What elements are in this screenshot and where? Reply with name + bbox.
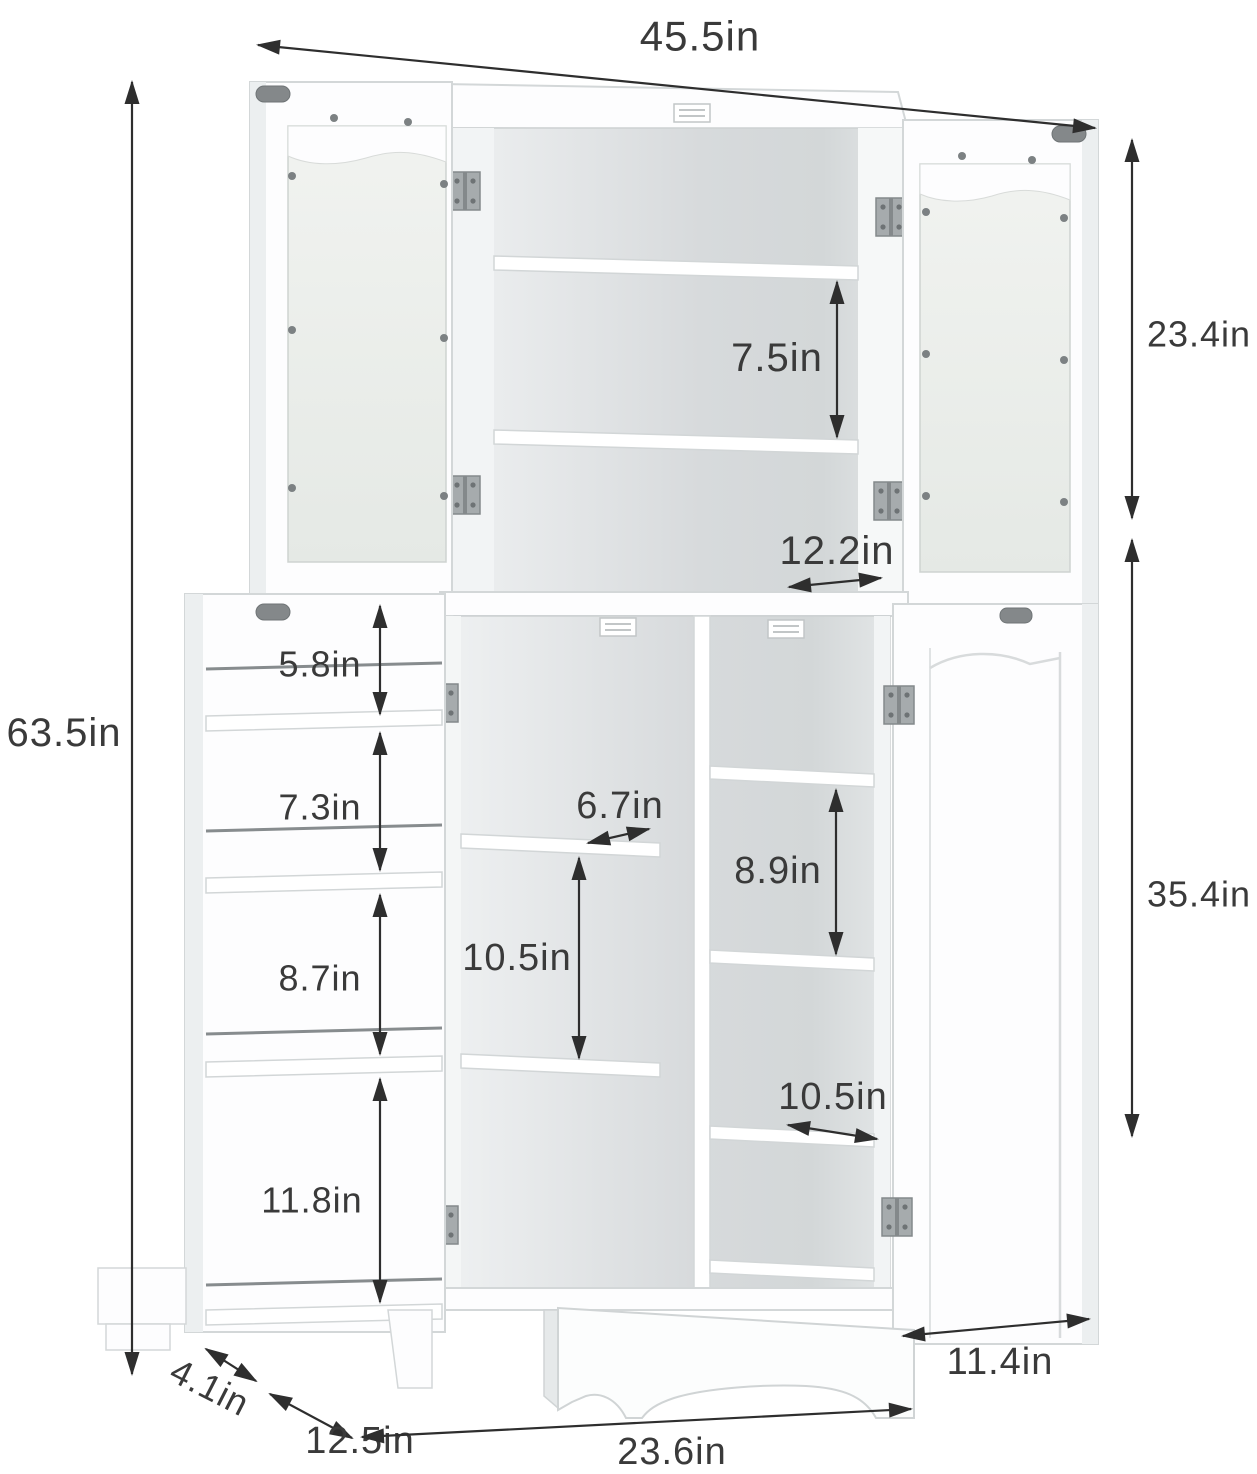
door-knob (1000, 608, 1032, 623)
dim-right-shelf-depth-label: 10.5in (778, 1076, 888, 1118)
center-divider (694, 616, 710, 1288)
dim-center-shelf-spacing-label: 10.5in (462, 937, 572, 979)
dim-right-door-width-label: 11.4in (947, 1341, 1054, 1383)
hinge-icon (450, 476, 480, 514)
dim-center-shelf-depth-label: 6.7in (576, 785, 663, 827)
dim-right-shelf-spacing-label: 8.9in (734, 850, 821, 892)
glass-panel (288, 126, 446, 562)
plinth-front-apron (558, 1308, 914, 1418)
left-side-foot (106, 1324, 170, 1350)
hinge-icon (874, 482, 904, 520)
door-catch-icon (768, 620, 804, 638)
left-side-base (98, 1268, 186, 1324)
dim-base-width-label: 23.6in (617, 1431, 727, 1473)
dim-door-rack-3-label: 8.7in (278, 958, 361, 999)
dim-overall-width-label: 45.5in (640, 13, 760, 60)
dim-door-rack-depth-label: 4.1in (164, 1350, 257, 1424)
upper-right-glass-door (903, 120, 1098, 614)
hinge-icon (884, 686, 914, 724)
door-catch-icon (674, 104, 710, 122)
upper-left-glass-door (250, 82, 452, 596)
dim-door-rack-1-label: 5.8in (278, 644, 361, 685)
door-knob (1052, 126, 1086, 142)
product-dimension-diagram: 45.5in 63.5in 23.4in 35.4in 7.5in 12.2in… (0, 0, 1257, 1474)
hinge-icon (876, 198, 906, 236)
dim-upper-height-label: 23.4in (1147, 314, 1251, 355)
dim-side-base-depth-label: 12.5in (305, 1420, 415, 1462)
dim-upper-shelf-spacing-label: 7.5in (731, 336, 823, 380)
cabinet-illustration (98, 82, 1098, 1418)
dim-door-rack-4-label: 11.8in (261, 1180, 362, 1221)
hinge-icon (450, 172, 480, 210)
dim-overall-height-label: 63.5in (7, 711, 122, 755)
glass-panel (920, 164, 1070, 572)
cabinet-diagram-canvas: 45.5in 63.5in 23.4in 35.4in 7.5in 12.2in… (0, 0, 1257, 1474)
dim-door-rack-2-label: 7.3in (278, 787, 361, 828)
door-knob (256, 86, 290, 102)
lower-top-band (440, 592, 908, 616)
cabinet-floor (440, 1288, 908, 1310)
dim-upper-depth-label: 12.2in (780, 529, 895, 573)
lower-right-door (882, 604, 1098, 1344)
hinge-icon (882, 1198, 912, 1236)
door-catch-icon (600, 618, 636, 636)
door-knob (256, 604, 290, 620)
dim-lower-height-label: 35.4in (1147, 874, 1251, 915)
base-left-foot (388, 1310, 432, 1388)
plinth-side (544, 1310, 558, 1408)
